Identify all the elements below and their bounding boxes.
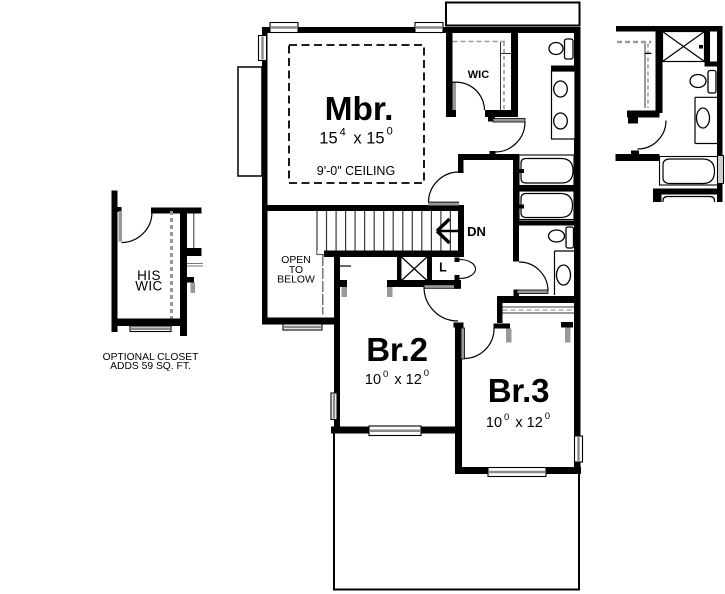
svg-text:Mbr.: Mbr.: [325, 91, 394, 128]
svg-text:9'-0" CEILING: 9'-0" CEILING: [317, 164, 395, 178]
svg-text:Br.2: Br.2: [366, 331, 428, 368]
svg-text:L: L: [439, 261, 447, 275]
svg-text:WIC: WIC: [135, 279, 162, 294]
svg-text:BELOW: BELOW: [277, 275, 315, 286]
svg-text:Br.3: Br.3: [488, 372, 550, 409]
svg-text:WIC: WIC: [468, 69, 489, 81]
svg-text:154 x 150: 154 x 150: [319, 126, 392, 148]
svg-text:DN: DN: [467, 224, 486, 239]
svg-text:ADDS 59 SQ. FT.: ADDS 59 SQ. FT.: [110, 361, 191, 372]
